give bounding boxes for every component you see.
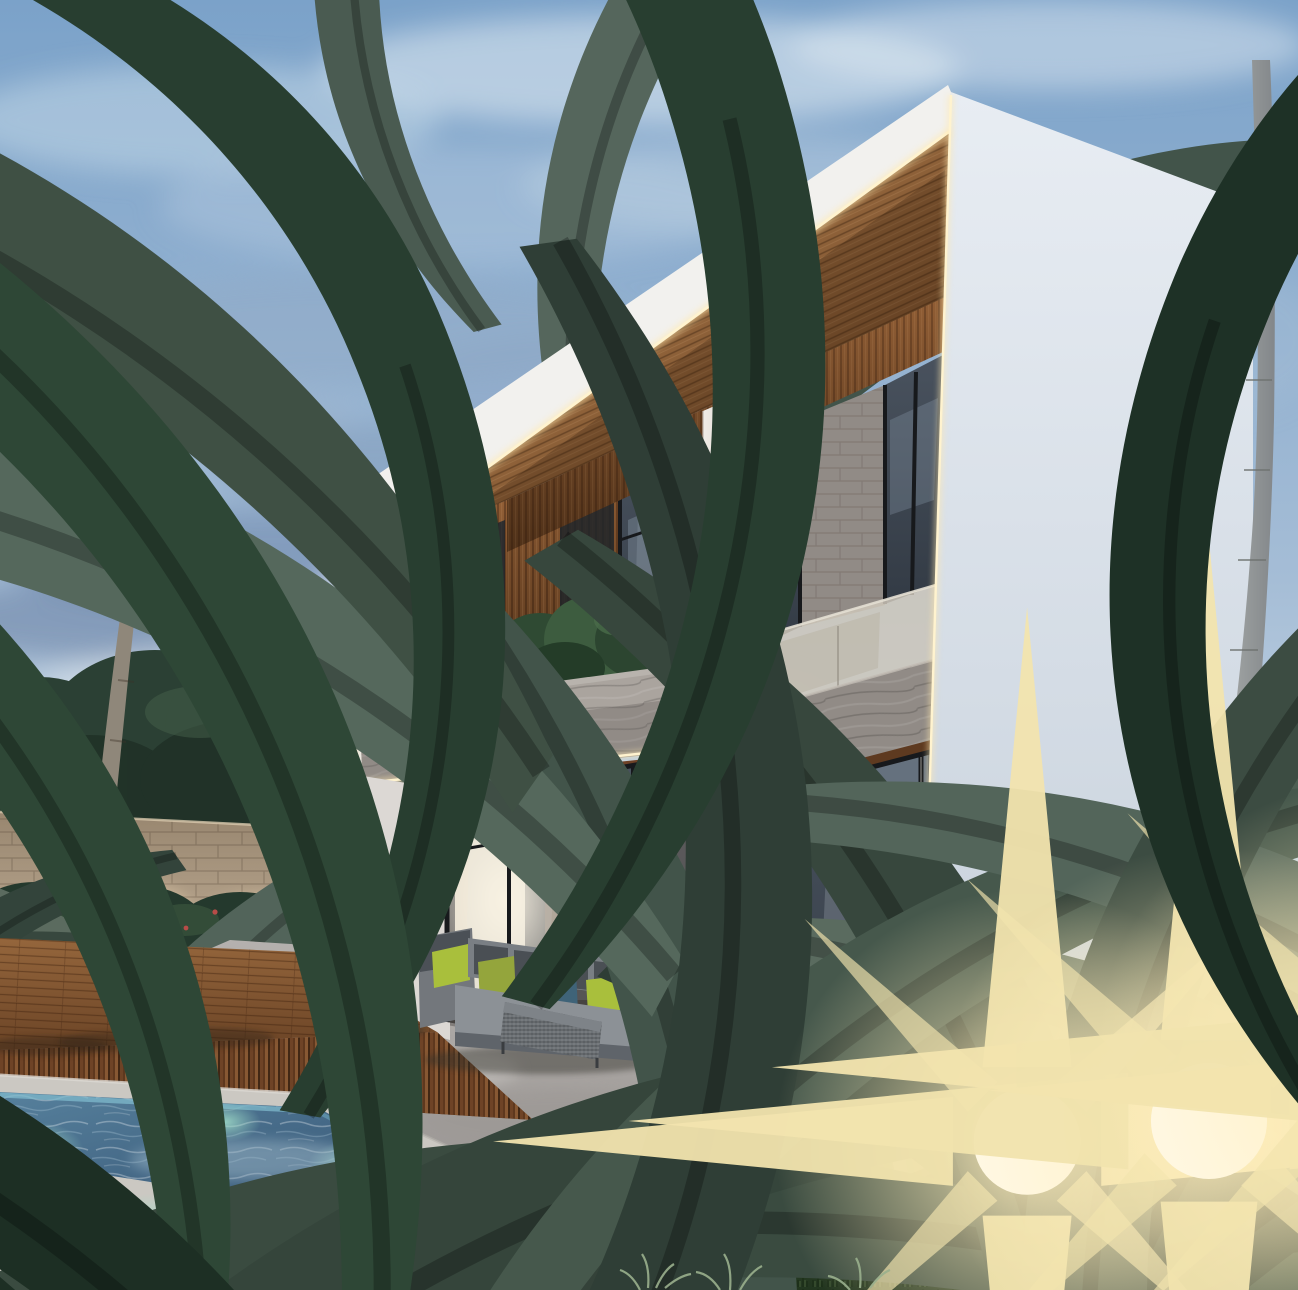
villa-dusk-rendering (0, 0, 1298, 1290)
rendering-canvas (0, 0, 1298, 1290)
